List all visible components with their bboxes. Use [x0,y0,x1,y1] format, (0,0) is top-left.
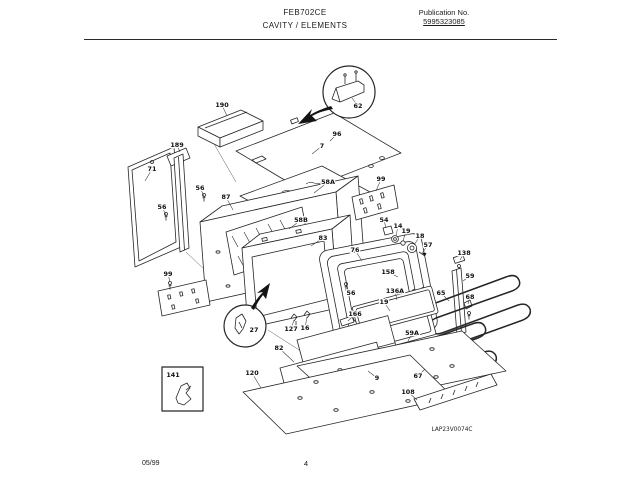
part-callout: 99 [377,175,386,183]
manual-page: FEB702CE CAVITY / ELEMENTS Publication N… [0,0,640,480]
part-callout: 138 [457,249,471,257]
part-callout: 190 [215,101,229,109]
part-callout: 83 [319,234,328,242]
part-callout: 19 [380,298,389,306]
part-callout: 7 [320,142,324,150]
part-callout: 99 [164,270,173,278]
part-callout: 18 [416,232,425,240]
part-callout: 57 [424,241,433,249]
part-callout: 58A [321,178,335,186]
part-callout: 158 [381,268,395,276]
part-callout: 71 [148,165,157,173]
part-99-shield-left-drawing [158,280,210,316]
part-callout: 56 [158,203,167,211]
part-callout: 59A [405,329,419,337]
part-callout: 62 [354,102,363,110]
part-callout: 96 [333,130,342,138]
drawing-code: LAP23V0074C [432,427,473,433]
part-callout: 58B [294,216,308,224]
part-callout: 136A [386,287,404,295]
part-68-clip-drawing [464,300,472,320]
part-callout: 16 [301,324,310,332]
part-callout: 59 [466,272,475,280]
part-callout: 87 [222,193,231,201]
part-callout: 19 [402,227,411,235]
footer-page-number: 4 [296,459,316,468]
part-callout: 189 [170,141,184,149]
part-callout: 65 [437,289,446,297]
part-callout: 166 [348,310,362,318]
part-callout: 27 [250,326,259,334]
part-callout: 76 [351,246,360,254]
part-190-bracket-drawing [198,110,263,147]
part-callout: 82 [275,344,284,352]
part-callout: 9 [375,374,380,382]
footer-date-code: 05/99 [142,460,160,467]
part-callout: 127 [284,325,297,333]
exploded-parts-diagram: LAP23V0074C 190189629677158A9956875658B5… [0,0,640,480]
part-callout: 56 [347,289,356,297]
part-callout: 108 [401,388,415,396]
part-callout: 67 [414,372,423,380]
part-callout: 56 [196,184,205,192]
part-callout: 120 [245,369,259,377]
part-callout: 141 [166,371,179,379]
part-callout: 68 [466,293,475,301]
inset-62-circle [298,66,375,124]
part-callout: 54 [380,216,389,224]
